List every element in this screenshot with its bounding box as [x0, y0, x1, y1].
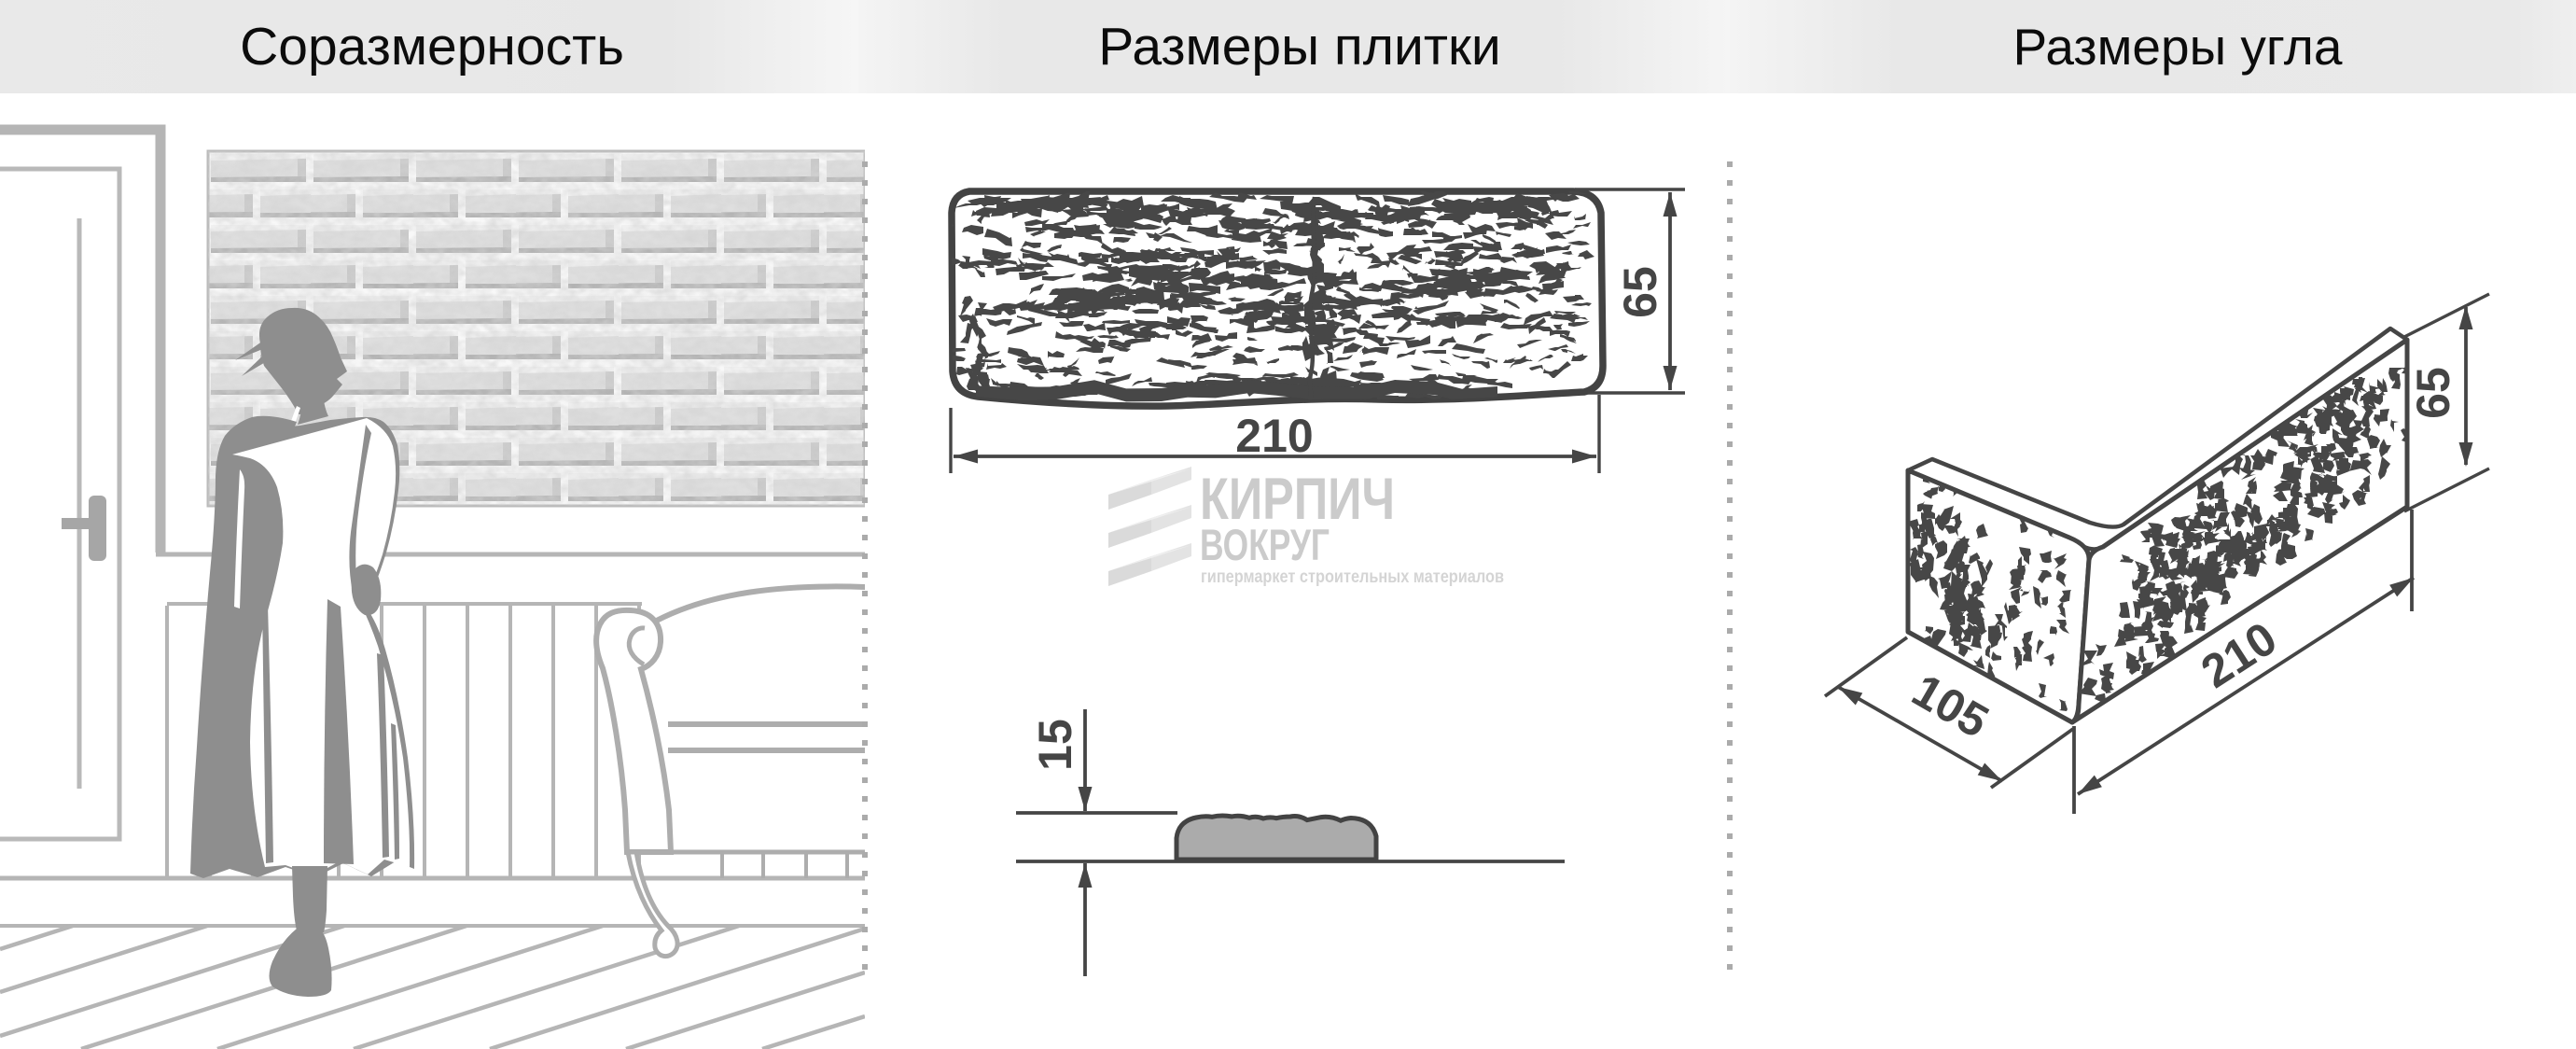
- svg-text:Размеры угла: Размеры угла: [2013, 18, 2343, 76]
- svg-text:ВОКРУГ: ВОКРУГ: [1200, 520, 1330, 569]
- svg-text:гипермаркет строительных матер: гипермаркет строительных материалов: [1201, 567, 1504, 587]
- svg-text:65: 65: [1614, 266, 1666, 318]
- svg-text:Размеры плитки: Размеры плитки: [1098, 17, 1501, 77]
- svg-text:210: 210: [1235, 410, 1313, 462]
- svg-text:15: 15: [1029, 719, 1081, 771]
- svg-text:105: 105: [1903, 664, 1997, 748]
- svg-text:65: 65: [2407, 367, 2459, 419]
- svg-text:Соразмерность: Соразмерность: [240, 17, 624, 77]
